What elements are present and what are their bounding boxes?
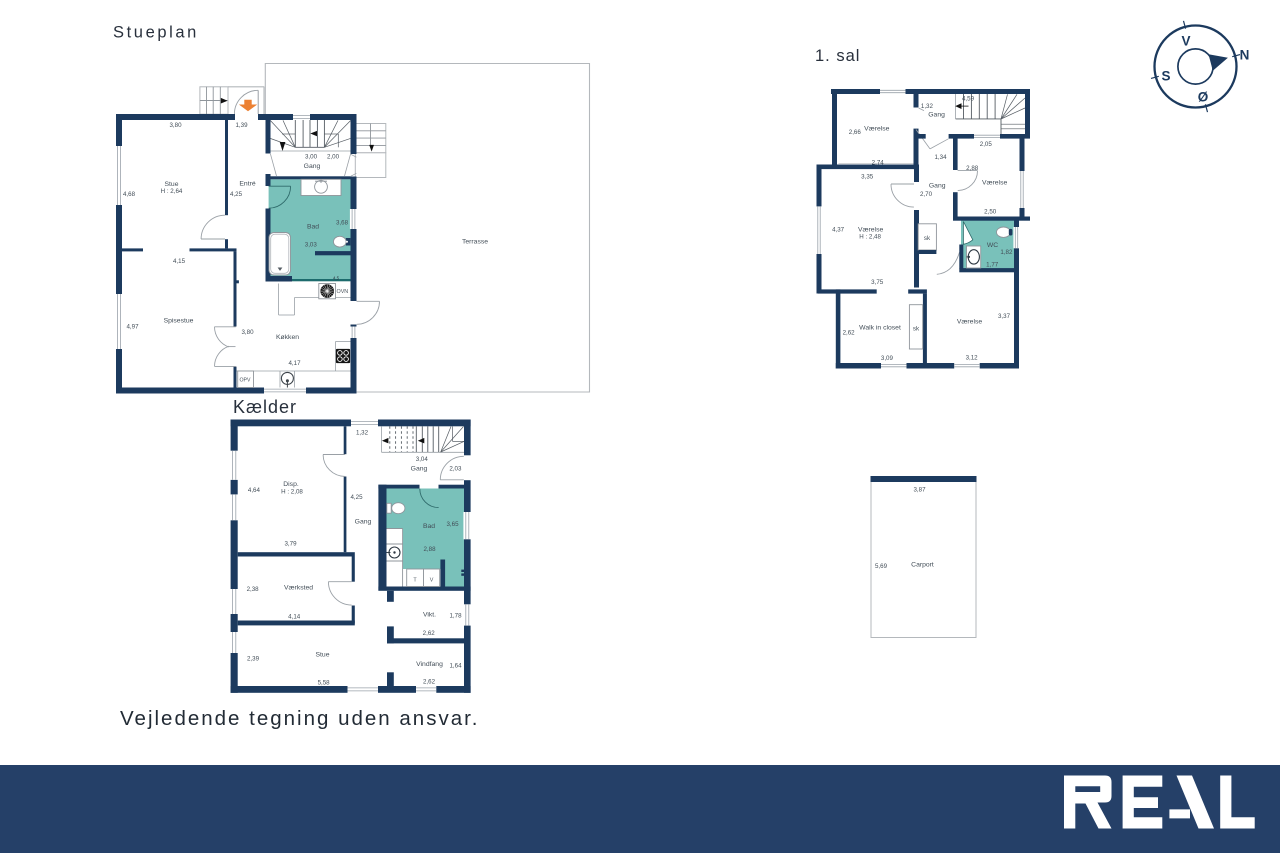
svg-text:V: V — [430, 577, 434, 583]
svg-text:Værelse: Værelse — [858, 226, 884, 233]
svg-text:2,50: 2,50 — [984, 208, 997, 215]
svg-text:1,39: 1,39 — [235, 122, 248, 129]
svg-text:1,34: 1,34 — [934, 154, 947, 161]
svg-text:4,37: 4,37 — [832, 226, 845, 233]
svg-text:Værelse: Værelse — [982, 179, 1008, 186]
svg-text:WC: WC — [987, 242, 998, 249]
svg-text:4,25: 4,25 — [230, 191, 243, 198]
svg-text:2,88: 2,88 — [966, 165, 979, 172]
svg-text:2,66: 2,66 — [849, 129, 862, 136]
svg-text:Køkken: Køkken — [276, 334, 299, 341]
svg-text:3,79: 3,79 — [284, 541, 297, 548]
svg-text:2,03: 2,03 — [449, 466, 462, 473]
svg-text:1,32: 1,32 — [356, 429, 369, 436]
svg-text:3,03: 3,03 — [305, 242, 318, 249]
svg-text:4,68: 4,68 — [123, 191, 136, 198]
svg-text:4,15: 4,15 — [173, 258, 186, 265]
svg-text:2,05: 2,05 — [980, 141, 993, 148]
svg-text:3,12: 3,12 — [966, 354, 979, 361]
svg-text:2,62: 2,62 — [423, 630, 436, 637]
svg-text:OVN: OVN — [337, 289, 349, 295]
svg-text:Værksted: Værksted — [284, 585, 313, 592]
svg-text:Spisestue: Spisestue — [164, 317, 194, 324]
svg-text:5,69: 5,69 — [875, 563, 888, 570]
svg-text:4,25: 4,25 — [350, 494, 363, 501]
svg-text:Bad: Bad — [307, 224, 319, 231]
svg-text:Gang: Gang — [928, 112, 945, 119]
svg-text:2,38: 2,38 — [247, 586, 260, 593]
svg-text:N: N — [1240, 48, 1250, 63]
svg-text:4,59: 4,59 — [962, 95, 975, 102]
svg-text:3,65: 3,65 — [446, 521, 459, 528]
svg-text:Gang: Gang — [304, 163, 321, 170]
svg-text:Gang: Gang — [355, 519, 372, 526]
svg-text:Walk in closet: Walk in closet — [859, 324, 901, 331]
svg-text:3,80: 3,80 — [169, 122, 182, 129]
svg-text:Vindfang: Vindfang — [416, 661, 443, 668]
svg-text:Gang: Gang — [411, 465, 428, 472]
svg-text:Stue: Stue — [316, 651, 330, 658]
svg-text:4,5: 4,5 — [333, 275, 340, 280]
svg-text:3,68: 3,68 — [336, 220, 349, 227]
svg-text:2,62: 2,62 — [843, 329, 856, 336]
svg-text:1,77: 1,77 — [986, 261, 999, 268]
svg-text:Stue: Stue — [165, 181, 179, 188]
svg-text:Gang: Gang — [929, 183, 946, 190]
svg-text:4,14: 4,14 — [288, 614, 301, 621]
svg-text:Vikt.: Vikt. — [423, 611, 436, 618]
svg-text:2,70: 2,70 — [920, 191, 933, 198]
svg-text:2,62: 2,62 — [423, 679, 436, 686]
svg-text:3,37: 3,37 — [998, 313, 1011, 320]
svg-text:2,00: 2,00 — [327, 153, 340, 160]
svg-text:Entré: Entré — [239, 180, 255, 187]
svg-text:3,75: 3,75 — [871, 279, 884, 286]
svg-text:2,74: 2,74 — [872, 159, 885, 166]
svg-text:Værelse: Værelse — [957, 319, 983, 326]
svg-text:Stueplan: Stueplan — [113, 24, 199, 42]
svg-text:H : 2,64: H : 2,64 — [161, 188, 183, 195]
svg-text:sk: sk — [913, 326, 920, 333]
svg-text:S: S — [1161, 69, 1170, 84]
svg-text:2,88: 2,88 — [423, 546, 436, 553]
svg-text:sk: sk — [924, 235, 931, 242]
svg-text:Bad: Bad — [423, 523, 435, 530]
svg-text:3,87: 3,87 — [913, 486, 926, 493]
svg-text:2,39: 2,39 — [247, 656, 260, 663]
svg-text:4,17: 4,17 — [288, 360, 301, 367]
svg-text:Vejledende tegning uden ansvar: Vejledende tegning uden ansvar. — [120, 707, 480, 730]
svg-text:1,82: 1,82 — [1000, 249, 1013, 256]
svg-text:H : 2,48: H : 2,48 — [859, 233, 881, 240]
svg-text:4,97: 4,97 — [126, 323, 139, 330]
svg-text:4,64: 4,64 — [248, 487, 261, 494]
svg-text:Carport: Carport — [911, 561, 934, 568]
svg-text:1,64: 1,64 — [449, 662, 462, 669]
svg-text:Ø: Ø — [1198, 90, 1209, 105]
svg-text:H : 2,08: H : 2,08 — [281, 489, 303, 496]
svg-text:V: V — [1181, 34, 1190, 49]
svg-text:1,32: 1,32 — [921, 103, 934, 110]
svg-text:1. sal: 1. sal — [815, 47, 860, 65]
svg-text:3,00: 3,00 — [305, 153, 318, 160]
svg-text:Terrasse: Terrasse — [462, 239, 488, 246]
svg-text:3,35: 3,35 — [861, 174, 874, 181]
svg-text:Kælder: Kælder — [233, 397, 297, 417]
svg-text:Værelse: Værelse — [864, 126, 890, 133]
svg-text:3,04: 3,04 — [416, 456, 429, 463]
svg-text:5,58: 5,58 — [318, 679, 331, 686]
svg-text:3,09: 3,09 — [881, 355, 894, 362]
svg-text:OPV: OPV — [240, 378, 251, 384]
svg-text:3,80: 3,80 — [241, 329, 254, 336]
svg-text:Disp.: Disp. — [283, 481, 299, 488]
svg-text:1,78: 1,78 — [449, 612, 462, 619]
